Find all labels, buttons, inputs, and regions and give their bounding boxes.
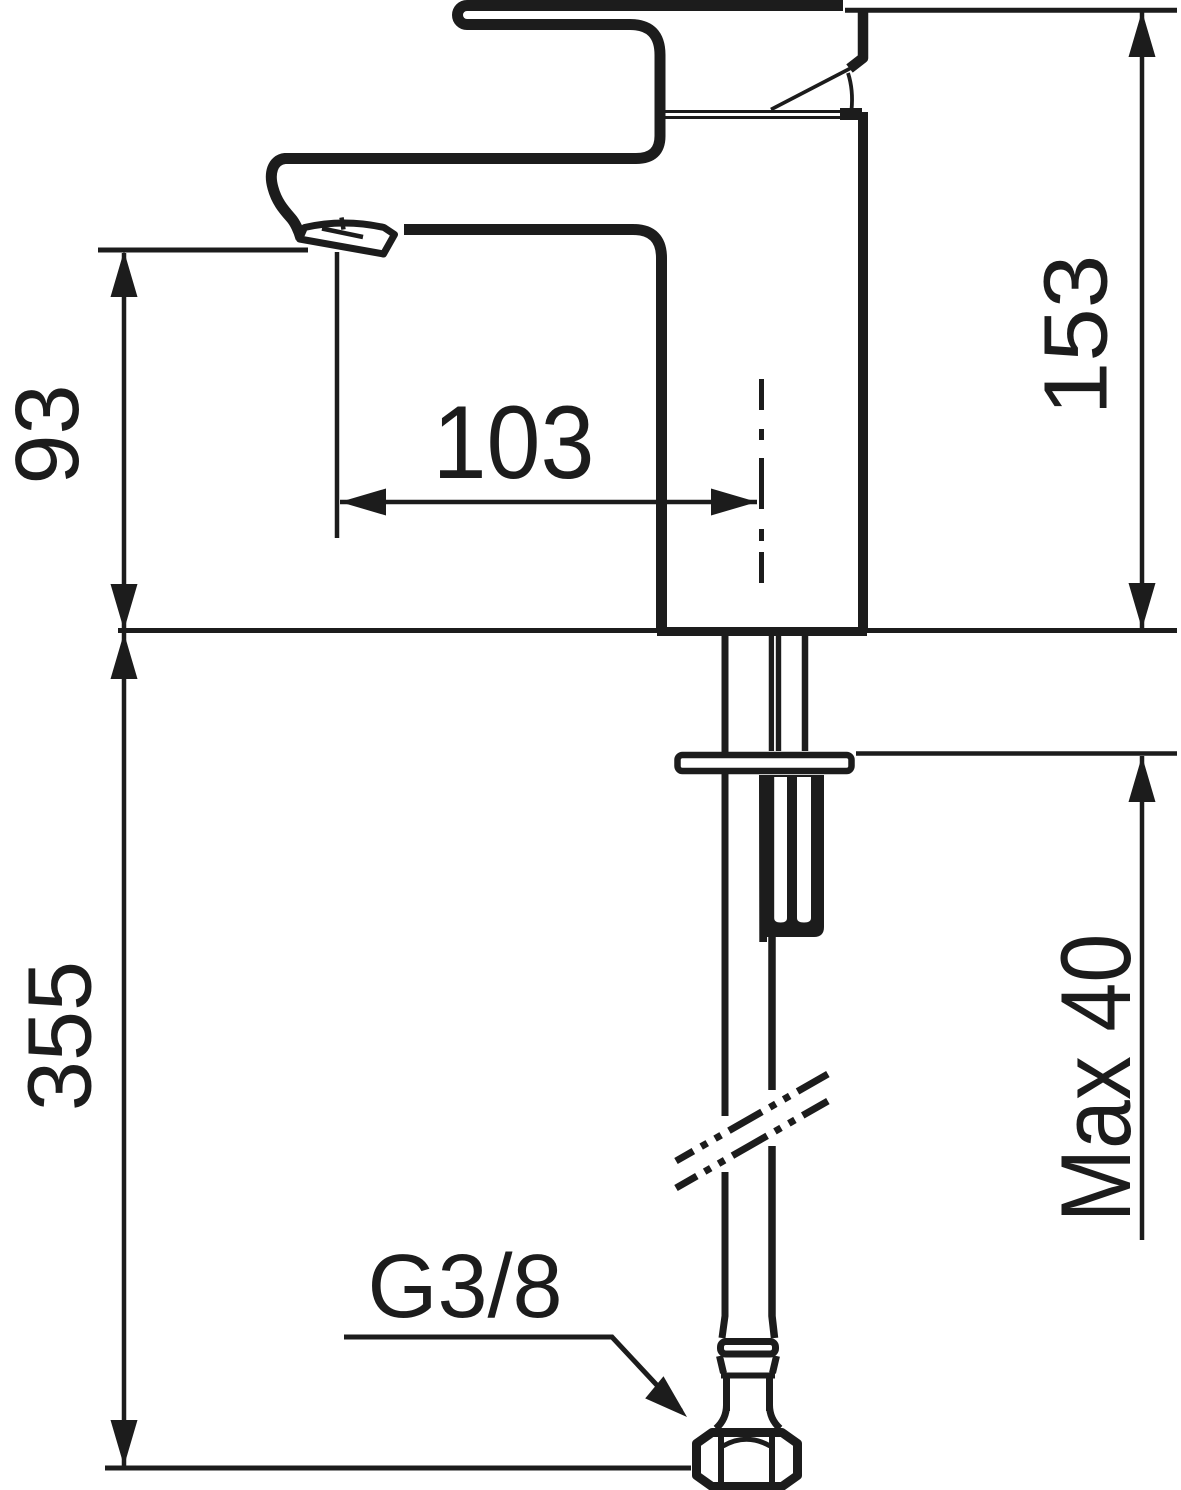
svg-text:G3/8: G3/8 [367, 1237, 562, 1337]
svg-text:Max 40: Max 40 [1040, 934, 1151, 1223]
svg-text:103: 103 [433, 385, 595, 501]
svg-text:93: 93 [0, 384, 98, 484]
svg-text:355: 355 [11, 961, 111, 1111]
svg-text:153: 153 [1025, 255, 1125, 416]
